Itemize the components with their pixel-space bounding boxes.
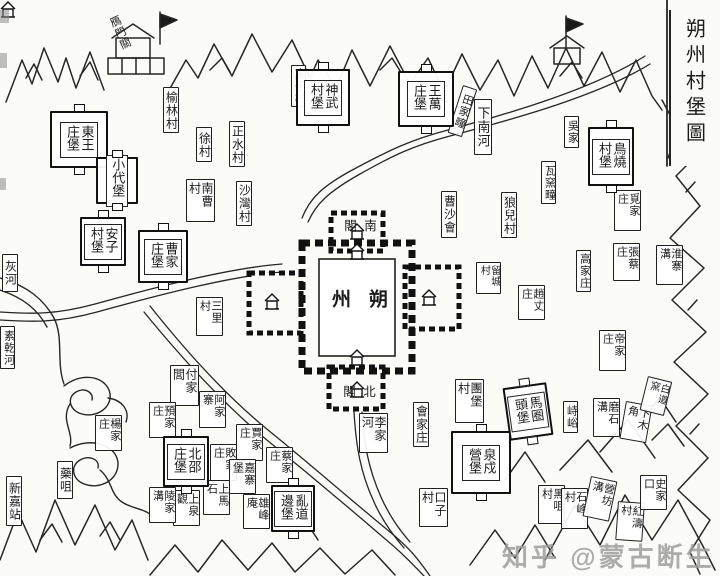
village-label: 賈家庄: [236, 424, 263, 461]
village-fort: 北邵庄堡: [163, 436, 209, 487]
mountains-right: [670, 146, 710, 574]
village-label: 預家庄: [149, 402, 176, 438]
fort-label: 安子村堡: [88, 227, 117, 257]
village-fort: 馬圈頭堡: [503, 382, 554, 441]
scan-smudge: [0, 10, 9, 23]
map-title: 朔州村堡圖: [680, 10, 709, 166]
village-label: 三里村: [196, 297, 223, 336]
historical-map-canvas: 朔州 南閣 北閣 朔州村堡圖 鴈門關榆林村窯子村下南河徐村正水村沙灣村南曹村三里…: [0, 0, 720, 576]
fort-label: 馬圈頭堡: [512, 395, 545, 429]
village-label: 沙灣村: [236, 181, 252, 226]
village-fort: 亂道邊堡: [271, 485, 315, 532]
fort-label: 王萬庄堡: [411, 84, 440, 114]
village-label: 楊家庄: [95, 415, 122, 451]
village-fort: 小代堡: [96, 157, 138, 204]
fort-inner-box: 小代堡: [106, 155, 129, 207]
village-label: 高家庄: [576, 250, 591, 292]
fort-label: 神武村堡: [308, 83, 337, 113]
city-gate-south-label: 南閣: [337, 219, 379, 234]
village-label: 帝家庄: [599, 330, 626, 371]
fort-inner-box: 泉戍營堡: [462, 445, 499, 481]
fort-inner-box: 安子村堡: [84, 224, 121, 260]
fort-label: 東王庄堡: [64, 125, 93, 155]
watermark: 知乎 @蒙古断生: [502, 537, 715, 574]
village-label: 史家口: [640, 475, 667, 510]
village-label: 付家閭: [170, 365, 199, 406]
scan-smudge: [0, 178, 6, 190]
map-title-box: 朔州村堡圖: [669, 10, 717, 166]
village-label: 新嘉站: [6, 476, 22, 526]
village-label: 徐村: [196, 127, 212, 162]
village-label: 覓家庄: [614, 190, 641, 231]
village-label: 趙丈庄: [518, 285, 545, 320]
village-label: 素乾河: [0, 326, 15, 369]
village-label: 下南河: [474, 99, 492, 155]
village-fort: 神武村堡: [296, 69, 350, 126]
fort-label: 泉戍營堡: [466, 448, 495, 478]
scan-smudge: [0, 53, 7, 68]
village-label: 曹沙會: [441, 191, 457, 238]
village-label: 藥咀: [57, 461, 73, 499]
village-label: 狼兒村: [501, 192, 517, 238]
village-label: 淮寨溝: [656, 245, 683, 285]
fort-inner-box: 鳥燒村堡: [592, 139, 629, 175]
city-name: 朔州: [319, 289, 395, 319]
village-label: 南曹村: [186, 179, 215, 222]
fort-inner-box: 北邵庄堡: [167, 444, 204, 480]
fort-inner-box: 亂道邊堡: [274, 491, 311, 527]
fort-label: 鳥燒村堡: [596, 142, 625, 172]
village-label: 峙峪: [563, 401, 578, 433]
village-label: 留城村: [476, 262, 501, 294]
mountains-bottom-center: [150, 540, 395, 575]
village-label: 雄峰庵: [243, 494, 270, 529]
village-fort: 泉戍營堡: [451, 431, 511, 494]
mountains-top-left: [6, 48, 104, 102]
village-label: 團堡村: [455, 379, 484, 423]
fort-label: 小代堡: [110, 158, 125, 204]
village-fort: 安子村堡: [80, 217, 126, 266]
village-fort: 鳥燒村堡: [588, 127, 634, 186]
city-gate-north-label: 北閣: [336, 385, 378, 400]
village-label: 口子村: [419, 488, 448, 527]
mountains-bottom-left: [0, 500, 148, 560]
fort-label: 曹家庄堡: [148, 242, 177, 272]
village-label: 瓦窯疃: [541, 161, 556, 204]
village-fort: 曹家庄堡: [138, 230, 188, 283]
village-label: 會家庄: [413, 402, 429, 447]
village-label: 吳家: [564, 116, 579, 148]
beacon-tower: [550, 16, 584, 64]
village-label: 阿家寨: [199, 391, 226, 428]
fort-inner-box: 東王庄堡: [60, 122, 97, 158]
village-label: 上泉觀: [173, 490, 200, 526]
fort-inner-box: 神武村堡: [304, 80, 341, 116]
village-fort: 王萬庄堡: [398, 71, 454, 127]
fort-label: 北邵庄堡: [171, 447, 200, 477]
village-label: 張蔡庄: [613, 243, 640, 281]
fort-inner-box: 王萬庄堡: [407, 81, 444, 117]
village-label: 陵家溝: [149, 487, 176, 523]
village-label: 灰河: [2, 254, 18, 292]
village-label: 正水村: [229, 121, 245, 167]
village-label: 嘉寨堡: [229, 459, 256, 494]
village-label: 榆林村: [163, 87, 179, 133]
fort-inner-box: 曹家庄堡: [144, 239, 181, 275]
fort-inner-box: 馬圈頭堡: [507, 391, 549, 432]
village-label: 磨石溝: [593, 398, 620, 437]
fort-label: 亂道邊堡: [278, 494, 307, 524]
village-label: 李家河: [359, 413, 388, 453]
